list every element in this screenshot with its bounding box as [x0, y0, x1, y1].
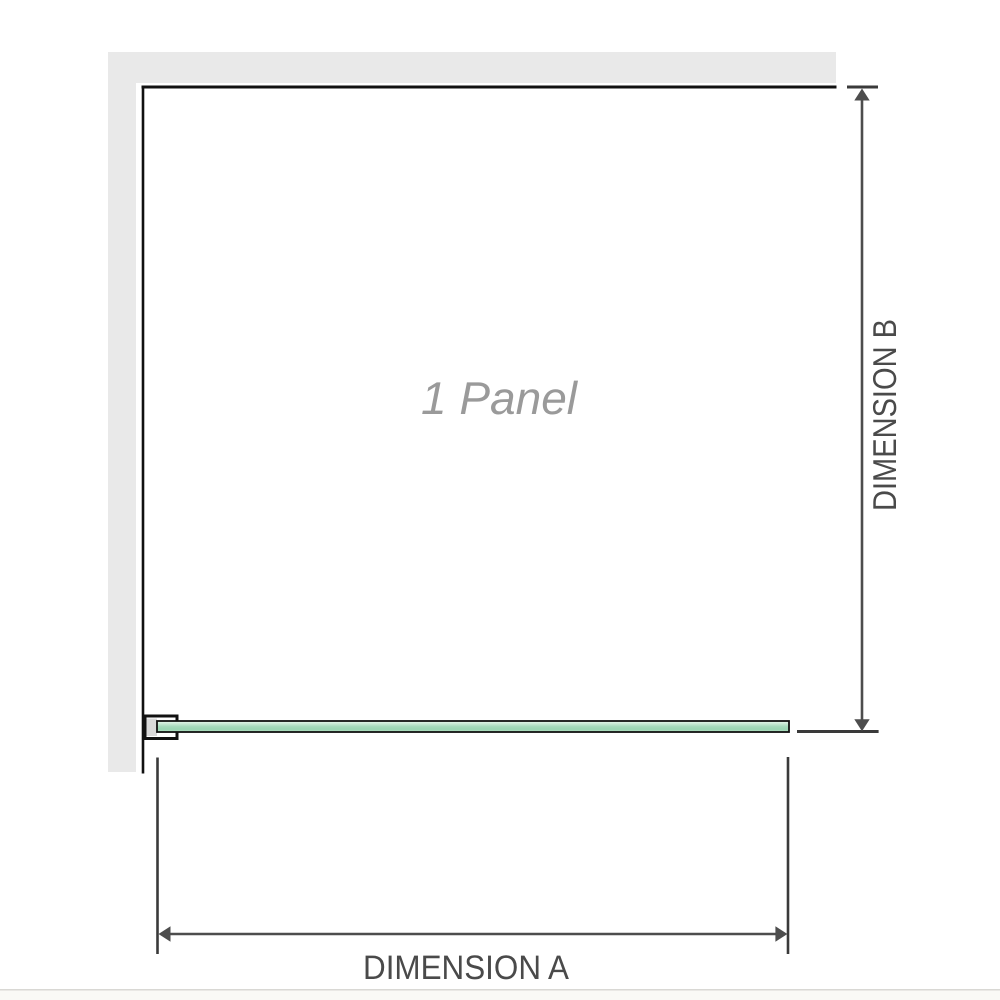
svg-text:DIMENSION A: DIMENSION A	[363, 949, 569, 987]
svg-text:1 Panel: 1 Panel	[421, 372, 579, 424]
svg-text:DIMENSION B: DIMENSION B	[866, 319, 903, 511]
